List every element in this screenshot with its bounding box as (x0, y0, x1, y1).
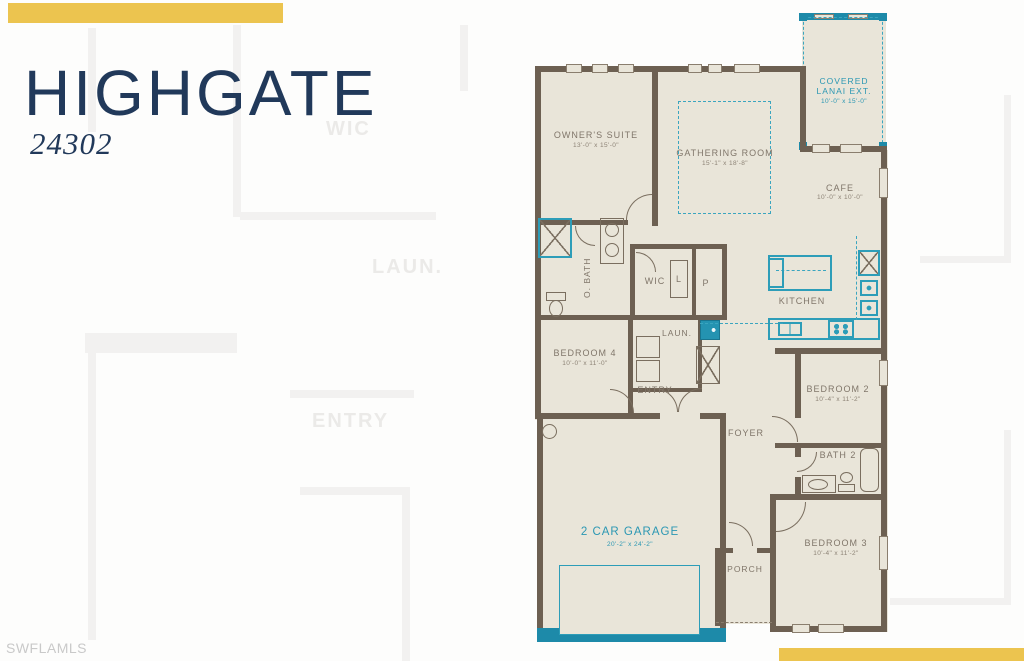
lanai-corner-post (879, 13, 887, 21)
ghost-wall (300, 487, 410, 495)
ghost-wall (88, 348, 96, 640)
window (566, 64, 582, 73)
toilet-icon (840, 472, 853, 483)
wall-hall-east (722, 244, 727, 320)
window (734, 64, 760, 73)
oven-icon (860, 300, 878, 316)
room-dims-garage: 20'-2" x 24'-2" (607, 541, 653, 548)
room-dims-bedroom4: 10'-0" x 11'-0" (562, 360, 608, 367)
window (792, 624, 810, 633)
watermark: SWFLAMLS (6, 640, 87, 656)
window (818, 624, 844, 633)
window (840, 144, 862, 153)
window (879, 360, 888, 386)
sink-icon (605, 223, 619, 237)
kitchen-sink (778, 322, 802, 336)
ghost-label-entry: ENTRY (312, 410, 389, 433)
room-dims-cafe: 10'-0" x 10'-0" (817, 194, 863, 201)
wall-wic-top (630, 244, 726, 249)
garage-door-outline (559, 565, 700, 635)
room-label-lanai: COVERED LANAI EXT. (805, 76, 883, 96)
plan-number: 24302 (30, 126, 113, 162)
room-label-laundry: LAUN. (662, 328, 692, 338)
room-label-entry: ENTRY (637, 385, 672, 395)
room-label-bedroom4: BEDROOM 4 (553, 348, 616, 358)
room-label-bedroom3: BEDROOM 3 (804, 538, 867, 548)
wall-kitchen-bed2 (775, 348, 887, 354)
ghost-wall (402, 487, 410, 661)
stove-icon (828, 320, 854, 338)
wall-front-left (535, 413, 660, 419)
dryer-icon (636, 360, 660, 382)
window (812, 144, 830, 153)
ghost-wall (85, 333, 237, 353)
floor-plan-page: { "header": { "title": "HIGHGATE", "plan… (0, 0, 1024, 661)
shower-icon (538, 218, 572, 258)
wall-garage-left (537, 413, 543, 640)
room-label-bath2: BATH 2 (820, 450, 857, 460)
toilet-icon (838, 484, 855, 492)
porch-edge-dashed (716, 622, 772, 623)
kitchen-counter-edge-right (856, 236, 857, 320)
gold-bar-top (8, 3, 283, 23)
wall-garage-right (720, 413, 726, 640)
ghost-wall (240, 212, 436, 220)
water-heater-icon (542, 424, 557, 439)
wall-bed2-left (795, 348, 801, 418)
wall-pantry-left (692, 244, 696, 320)
wall-owner-divider (652, 66, 658, 226)
coat-closet-icon (696, 346, 720, 384)
page-title: HIGHGATE (24, 56, 378, 130)
sink-icon (808, 479, 828, 490)
wall-wic-left (630, 244, 635, 320)
toilet-icon (549, 300, 563, 317)
room-label-foyer: FOYER (728, 428, 764, 438)
wall-gathering-right (800, 66, 806, 152)
window (879, 168, 888, 198)
ghost-wall (460, 25, 468, 91)
gold-bar-bottom (779, 648, 1024, 661)
ghost-wall (920, 256, 1011, 263)
window (879, 536, 888, 570)
wall-porch-top-b (757, 548, 772, 553)
room-label-owners-bath: O. BATH (582, 238, 592, 298)
room-label-kitchen: KITCHEN (779, 296, 826, 306)
room-dims-owners-suite: 13'-0" x 15'-0" (573, 142, 619, 149)
room-label-wic: WIC (645, 276, 666, 286)
oven-icon (860, 280, 878, 296)
refrigerator-icon (858, 250, 880, 276)
tub-icon (860, 448, 879, 492)
wall-bath2-bed3 (770, 494, 887, 500)
wall-porch-left (715, 548, 720, 626)
room-dims-gathering: 15'-1" x 18'-8" (702, 160, 748, 167)
room-label-cafe: CAFE (826, 183, 854, 193)
ghost-wall (290, 390, 414, 398)
room-label-gathering: GATHERING ROOM (676, 148, 773, 158)
ghost-wall (1004, 430, 1011, 602)
ghost-wall (890, 598, 1011, 605)
window (592, 64, 608, 73)
room-dims-bedroom3: 10'-4" x 11'-2" (813, 550, 859, 557)
washer-icon (636, 336, 660, 358)
ghost-wall (1004, 95, 1011, 263)
room-label-bedroom2: BEDROOM 2 (806, 384, 869, 394)
lanai-corner-post (799, 13, 807, 21)
room-label-linen: L (676, 274, 682, 284)
room-label-porch: PORCH (727, 564, 763, 574)
room-label-pantry: P (702, 278, 709, 288)
kitchen-island-sink-cap (768, 258, 784, 288)
room-label-garage: 2 CAR GARAGE (581, 526, 679, 538)
window (618, 64, 634, 73)
sink-icon (605, 243, 619, 257)
room-dims-lanai: 10'-0" x 15'-0" (821, 98, 867, 105)
hall-counter-dashed (700, 323, 783, 324)
room-label-owners-suite: OWNER'S SUITE (554, 130, 638, 140)
window (688, 64, 702, 73)
ghost-label-laundry: LAUN. (372, 256, 443, 279)
window (708, 64, 722, 73)
room-dims-bedroom2: 10'-4" x 11'-2" (815, 396, 861, 403)
